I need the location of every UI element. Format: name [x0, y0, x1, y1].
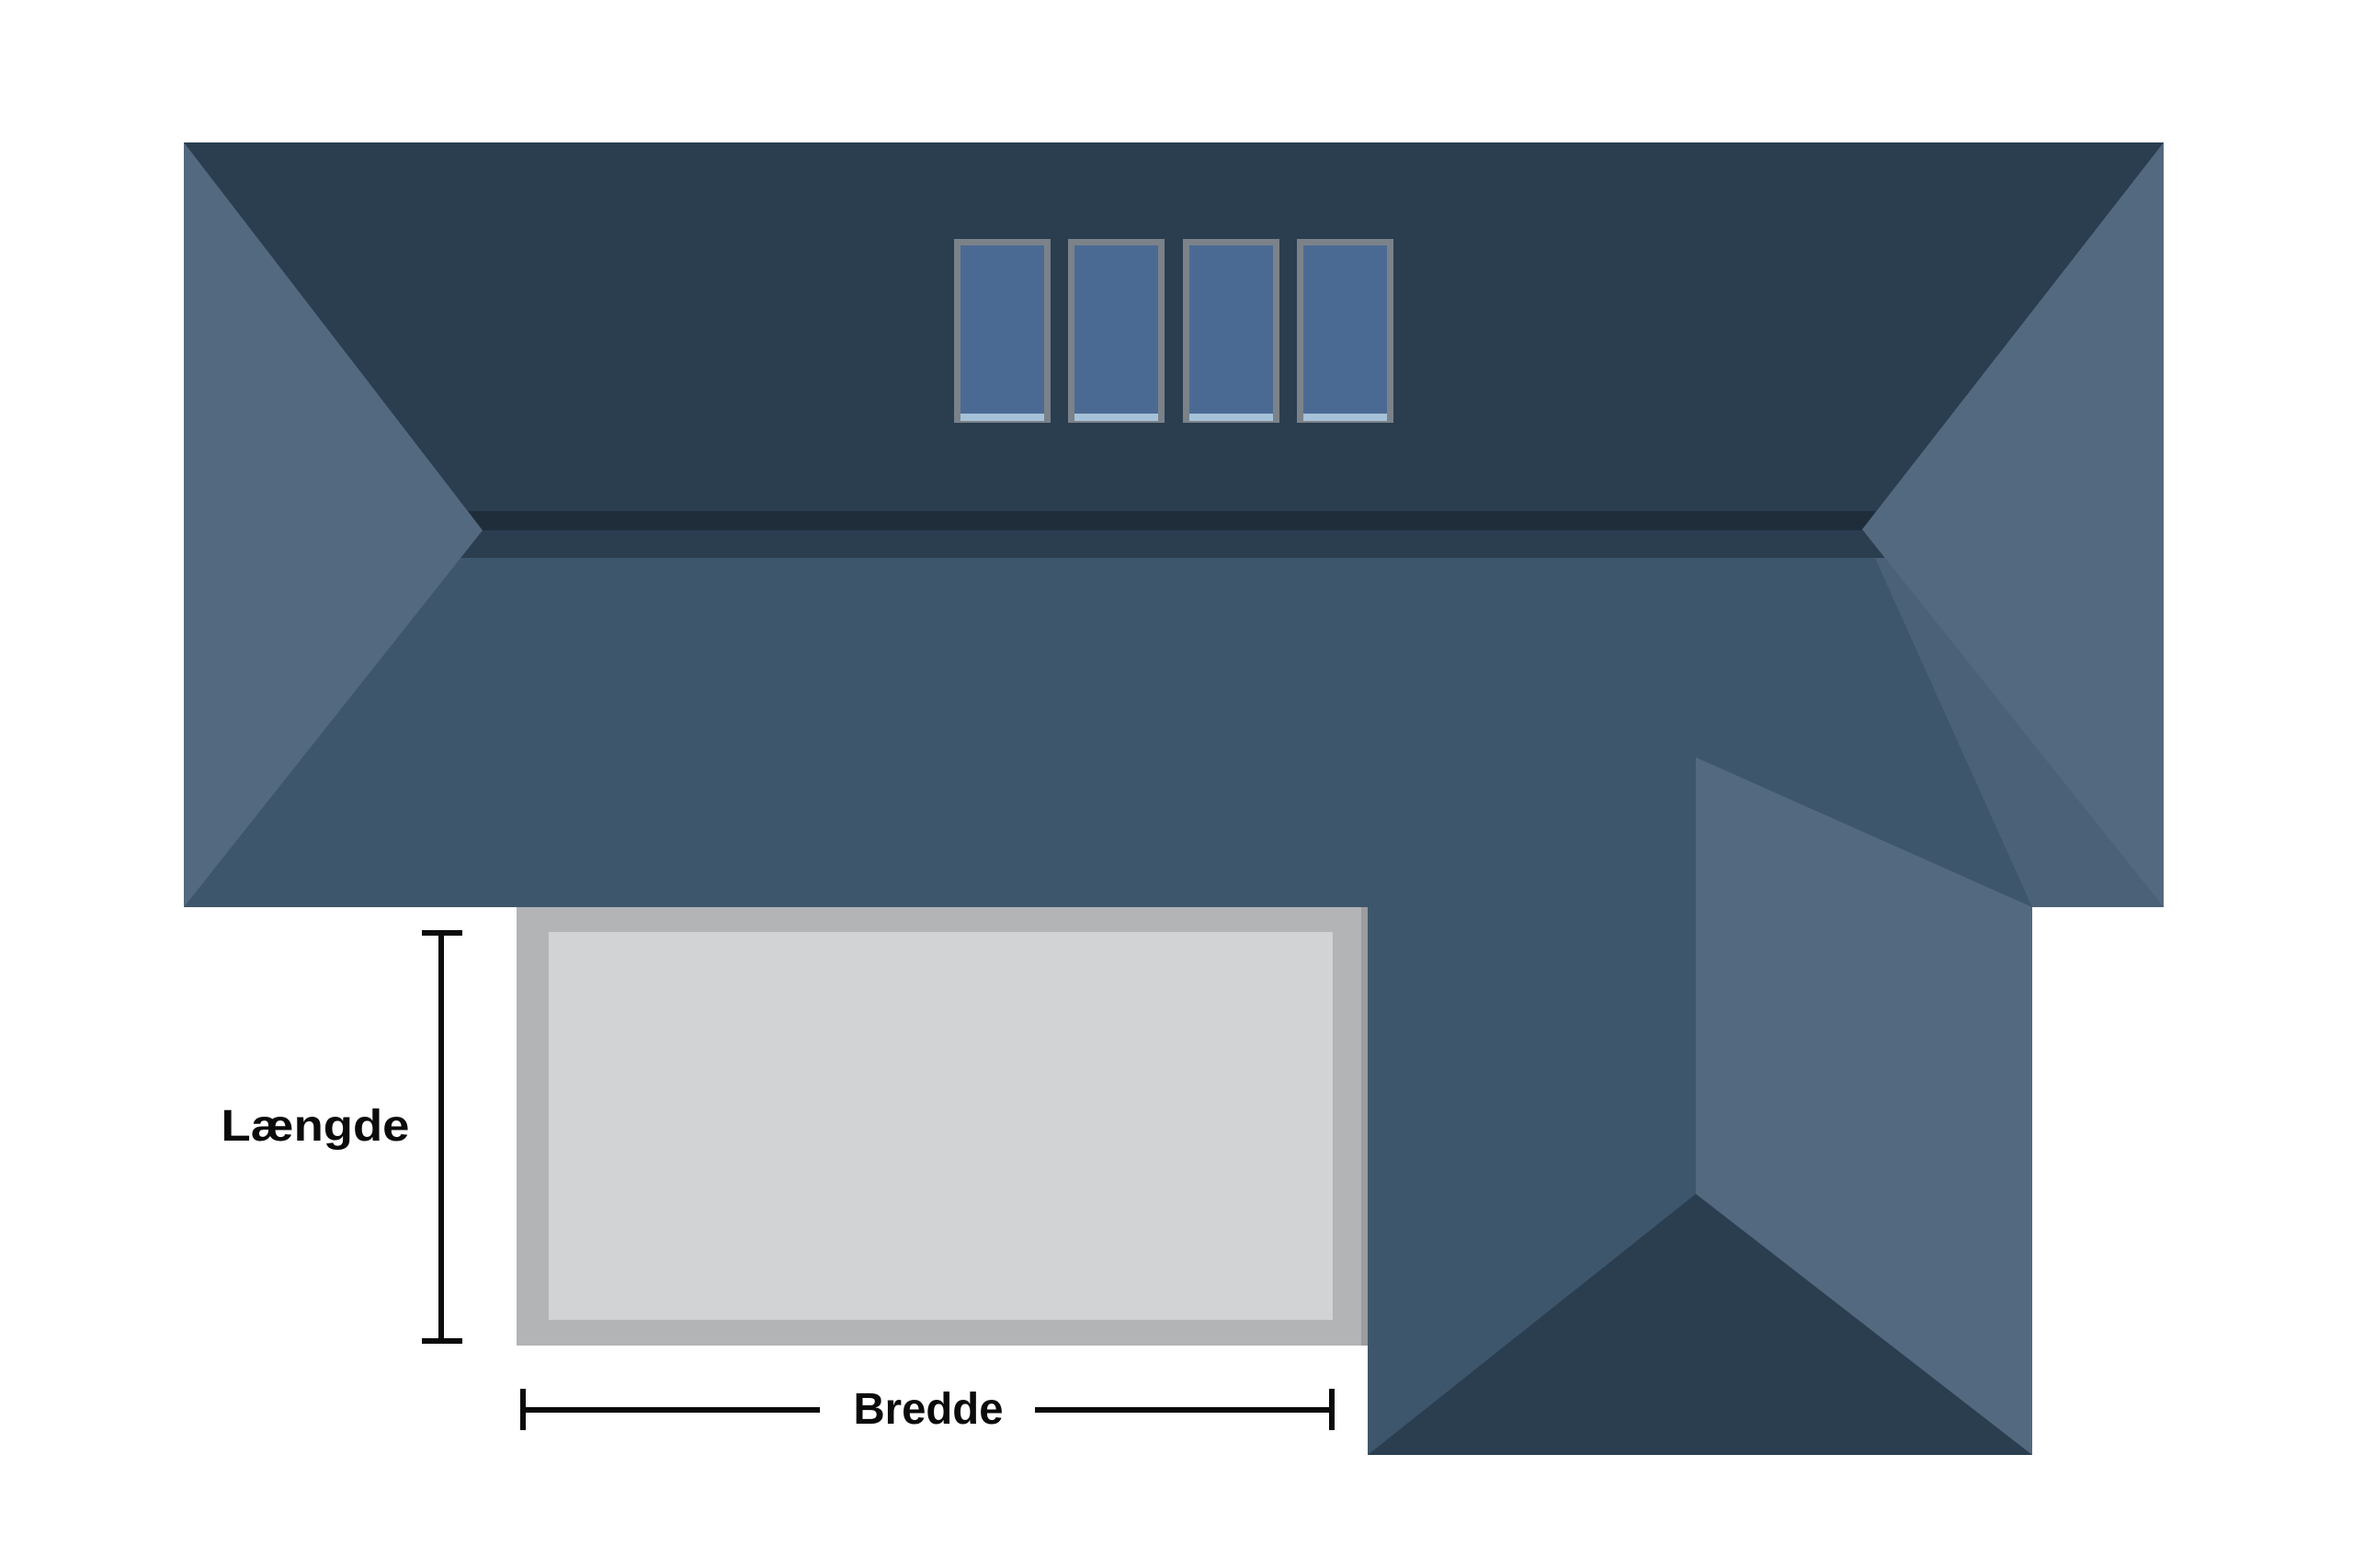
- svg-text:Længde: Længde: [222, 1102, 410, 1151]
- svg-text:Bredde: Bredde: [854, 1385, 1004, 1434]
